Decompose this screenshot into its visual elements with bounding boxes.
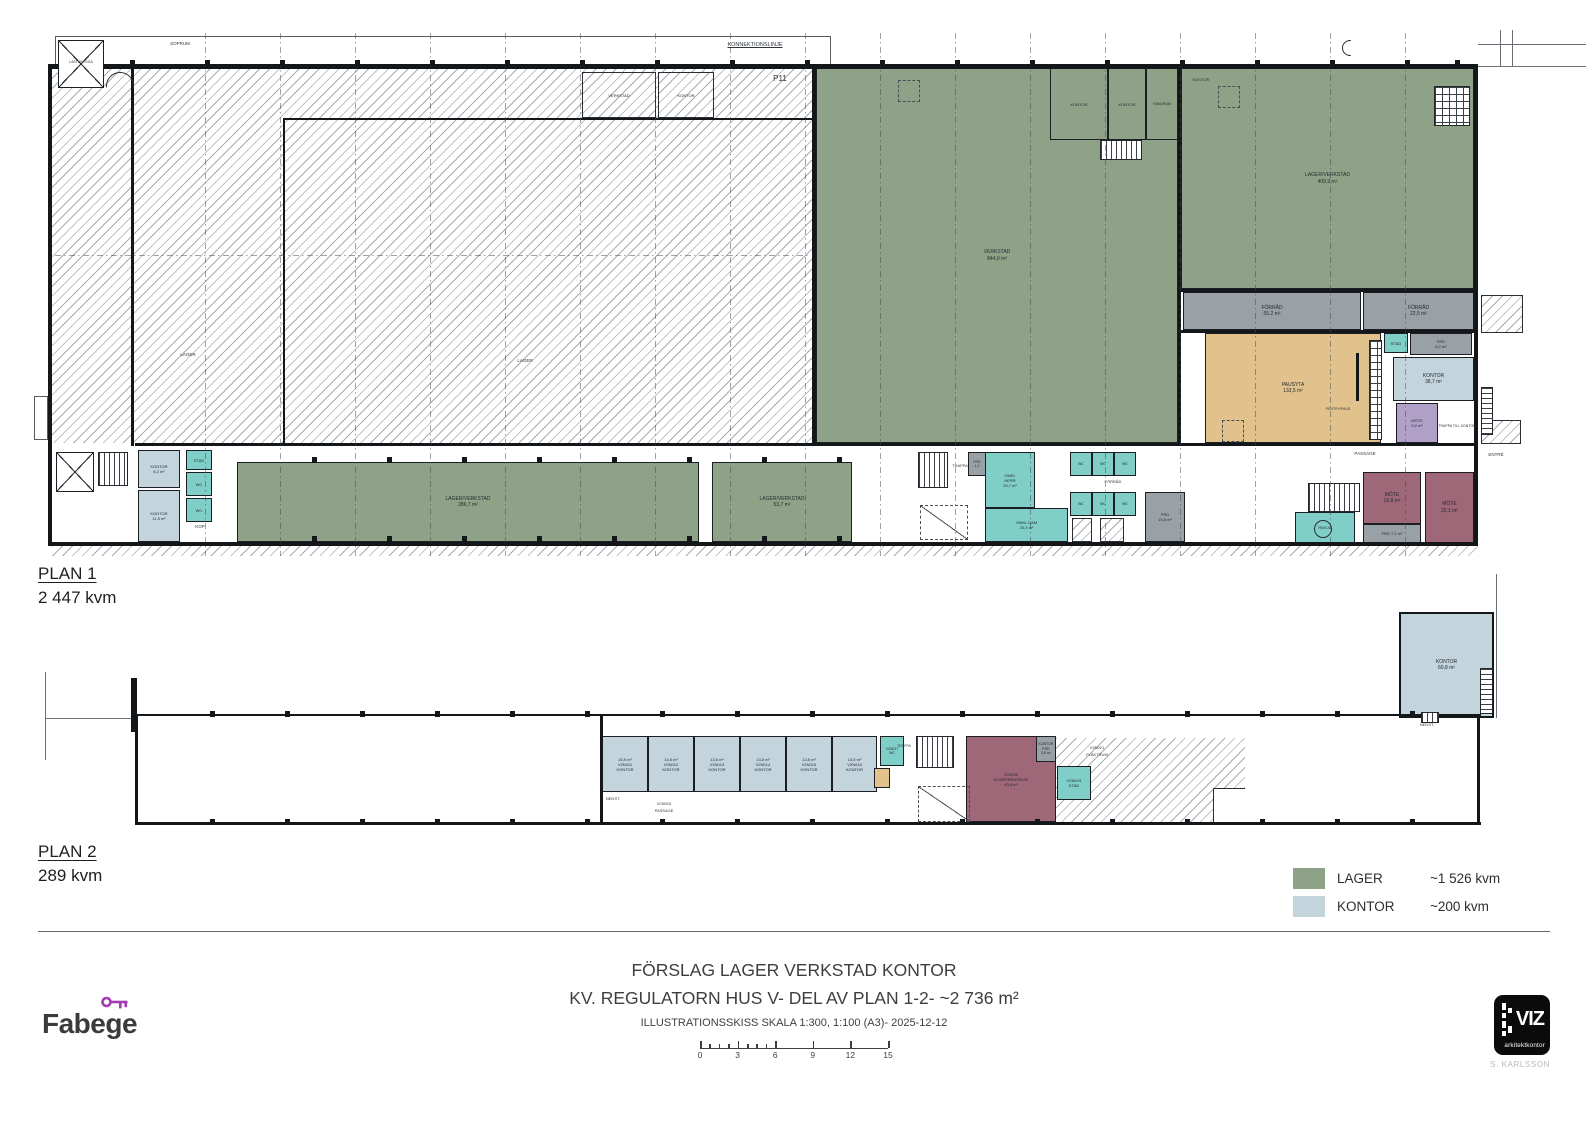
elevator-box (56, 452, 94, 492)
column-marker (312, 536, 317, 542)
scale-label: 12 (841, 1050, 859, 1060)
column-marker (1410, 819, 1415, 825)
plan-element (135, 443, 1478, 446)
grid-line (1255, 33, 1256, 556)
plan-element: WC (1092, 492, 1114, 516)
stairs (1480, 668, 1493, 714)
column-marker (762, 536, 767, 542)
column-marker (1180, 60, 1185, 66)
room-lager-verkstad-286: LAGER/VERKSTAD286,7 m² (237, 462, 699, 542)
column-marker (960, 711, 965, 717)
plan-note: PASSAGE (648, 809, 680, 814)
column-marker (462, 457, 467, 463)
plan-element (135, 822, 1481, 825)
plan-element (45, 672, 46, 760)
column-marker (1185, 819, 1190, 825)
external-landing (1481, 295, 1523, 333)
plan-element (48, 542, 1478, 546)
plan-element (45, 718, 135, 719)
column-marker (210, 819, 215, 825)
plan-element: KONTORFRD3,8 m² (1036, 736, 1056, 762)
column-marker (355, 60, 360, 66)
plan-element: STÄD (186, 450, 212, 470)
title-line3: ILLUSTRATIONSSKISS SKALA 1:300, 1:100 (A… (0, 1017, 1588, 1029)
column-marker (885, 711, 890, 717)
column-marker (612, 536, 617, 542)
plan-element: WC (1070, 492, 1092, 516)
plan-note: FÖRRÅD (1096, 480, 1130, 485)
column-marker (1185, 711, 1190, 717)
plan-note: V2N010 (648, 802, 680, 807)
grid-line (730, 33, 731, 556)
grid-line (655, 33, 656, 556)
plan-note: TRAPPA (946, 464, 974, 469)
scale-tick (709, 1044, 711, 1048)
scale-label: 6 (766, 1050, 784, 1060)
column-marker (1260, 819, 1265, 825)
plan-element (283, 118, 285, 445)
plan-element (285, 118, 815, 120)
column-marker (960, 819, 965, 825)
column-marker (435, 819, 440, 825)
column-marker (387, 536, 392, 542)
column-marker (612, 457, 617, 463)
scale-label: 15 (879, 1050, 897, 1060)
legend-item-lager: LAGER ~1 526 kvm (1293, 868, 1563, 889)
scale-label: 3 (729, 1050, 747, 1060)
grid-line (205, 33, 206, 556)
plan2-area: 289 kvm (38, 866, 102, 886)
plan-element (135, 714, 138, 825)
plan-element: HANDRUM (1146, 68, 1178, 140)
scale-tick (775, 1041, 777, 1048)
legend-value-lager: ~1 526 kvm (1430, 871, 1500, 886)
legend-label-kontor: KONTOR (1337, 899, 1430, 914)
column-marker (462, 536, 467, 542)
column-marker (285, 819, 290, 825)
column-marker (1110, 819, 1115, 825)
plan-element (48, 64, 52, 546)
column-marker (435, 711, 440, 717)
room-kontor-v2n015: 13,5 m²V2N015KONTOR (786, 736, 832, 792)
column-marker (735, 711, 740, 717)
column-marker (580, 60, 585, 66)
column-marker (285, 711, 290, 717)
column-marker (837, 536, 842, 542)
scale-tick (813, 1041, 815, 1048)
column-marker (510, 711, 515, 717)
plan-note: ENTRÉ (1482, 452, 1510, 457)
column-marker (1260, 711, 1265, 717)
room-lager-verkstad-53: LAGER/VERKSTAD53,7 m² (712, 462, 852, 542)
scale-tick (728, 1044, 730, 1048)
legend-swatch-kontor (1293, 896, 1325, 917)
column-marker (660, 711, 665, 717)
column-marker (1335, 711, 1340, 717)
column-marker (360, 711, 365, 717)
stairs (98, 452, 128, 486)
room-kontor-v2n016: 13,5 m²V2N016KONTOR (832, 736, 877, 792)
room-kontor-v2n014: 13,5 m²V2N014KONTOR (740, 736, 786, 792)
room-kontor-11: KONTOR11,5 m² (138, 490, 180, 542)
plan-note: PENTRY/PAUS (1320, 407, 1356, 411)
stairs (1308, 483, 1360, 512)
grid-line (1030, 33, 1031, 556)
column-marker (1035, 819, 1040, 825)
plan-element (1072, 518, 1092, 542)
plan1-caption: PLAN 1 2 447 kvm (38, 564, 116, 608)
column-marker (687, 457, 692, 463)
room-mote-32: MÖTE32,1 m² (1425, 472, 1474, 543)
plan-note: KOP (190, 524, 210, 529)
reserved-area (920, 505, 968, 540)
column-marker (312, 457, 317, 463)
drawing-sheet: VERKSTAD844,0 m²LAGER/VERKSTAD409,9 m²FÖ… (0, 0, 1588, 1123)
legend-value-kontor: ~200 kvm (1430, 899, 1489, 914)
key-icon (101, 995, 131, 1011)
room-forrad-55: FÖRRÅD55,2 m² (1183, 292, 1361, 330)
room-kontor-v2n012: 13,5 m²V2N012KONTOR (648, 736, 694, 792)
column-marker (130, 60, 135, 66)
column-marker (585, 819, 590, 825)
room-kontor-v2n013: 13,5 m²V2N013KONTOR (694, 736, 740, 792)
scale-bar: 03691215 (700, 1040, 888, 1049)
legend-swatch-lager (1293, 868, 1325, 889)
plan-element: VERKSTAD (582, 72, 656, 118)
plan-element (812, 64, 816, 446)
grid-line (355, 33, 356, 556)
column-marker (955, 60, 960, 66)
pillar-dashed (898, 80, 920, 102)
plan-element: KONTOR (1108, 68, 1146, 140)
scale-tick (700, 1041, 702, 1048)
column-marker (537, 536, 542, 542)
plan-element: FRD 7,1 m² (1363, 524, 1421, 543)
plan-note: LAGER (168, 352, 208, 357)
plan-note: SOPRUM (150, 41, 210, 46)
plan-element (600, 716, 603, 822)
plan-note: TRAPPA (893, 744, 915, 748)
plan-element: WC (1114, 452, 1136, 476)
plan-element: KONTOR (658, 72, 714, 118)
ground-hatch (52, 546, 1478, 556)
plan-element (48, 64, 1478, 69)
scale-label: 9 (804, 1050, 822, 1060)
plan2-caption: PLAN 2 289 kvm (38, 842, 102, 886)
plan-note: LAGER (505, 358, 545, 363)
column-marker (880, 60, 885, 66)
scale-tick (756, 1044, 758, 1048)
plan-note: KONNEKTIONSLINJE (695, 42, 815, 48)
plan-note: P11 (760, 74, 800, 83)
stairs (916, 736, 954, 768)
column-marker (1335, 819, 1340, 825)
room-mote-19: MÖTE19,8 m² (1363, 472, 1421, 524)
column-marker (1330, 60, 1335, 66)
hook-symbol (1342, 40, 1358, 56)
architect-credit: S. KARLSSON (1460, 1060, 1550, 1069)
plan-note: TRAPPA TILL KONTOR (1438, 424, 1476, 428)
plan-element (1478, 66, 1586, 67)
plan-note: NEDST. (1412, 723, 1442, 728)
divider-rule (38, 931, 1550, 932)
plan1-area: 2 447 kvm (38, 588, 116, 608)
plan2-title: PLAN 2 (38, 842, 102, 862)
column-marker (805, 60, 810, 66)
room-kontor-8: KONTOR8,2 m² (138, 450, 180, 488)
scale-tick (719, 1044, 721, 1048)
plan-element (135, 714, 1481, 716)
column-marker (885, 819, 890, 825)
plan-element: V2N017WC (880, 736, 904, 766)
plan-element: FRD6,2 m² (1410, 333, 1472, 355)
plan-element: WC (186, 472, 212, 496)
column-marker (655, 60, 660, 66)
column-marker (660, 819, 665, 825)
plan-element (1500, 30, 1501, 66)
grid-line (955, 33, 956, 556)
plan1-title: PLAN 1 (38, 564, 116, 584)
plan-note: PASSAGE (1345, 451, 1385, 456)
grid-line (1405, 33, 1406, 556)
plan-note: FLÄKTRUM (1080, 753, 1114, 758)
viz-logo-dots (1502, 1003, 1506, 1010)
plan-element (1478, 44, 1586, 45)
room-forrad-22: FÖRRÅD22,5 m² (1363, 292, 1474, 330)
column-marker (1255, 60, 1260, 66)
grid-line (1180, 33, 1181, 556)
grid-line (580, 33, 581, 556)
column-marker (810, 711, 815, 717)
room-kontor-v2n011: 15,9 m²V2N011KONTOR (602, 736, 648, 792)
viz-logo-text: VIZ (1516, 1008, 1544, 1031)
plan-element (1213, 788, 1245, 822)
title-line2: KV. REGULATORN HUS V- DEL AV PLAN 1-2- ~… (0, 988, 1588, 1009)
room-omkl-herr: OMKLHERR20,7 m² (985, 452, 1035, 508)
reserved-area (918, 786, 970, 822)
plan-element: WC (1070, 452, 1092, 476)
column-marker (1035, 711, 1040, 717)
column-marker (730, 60, 735, 66)
stairs (1100, 140, 1142, 160)
legend-label-lager: LAGER (1337, 871, 1430, 886)
column-marker (837, 457, 842, 463)
title-line1: FÖRSLAG LAGER VERKSTAD KONTOR (0, 960, 1588, 981)
grid-line (430, 33, 431, 556)
grid-line (805, 33, 806, 556)
legend-item-kontor: KONTOR ~200 kvm (1293, 896, 1563, 917)
column-marker (585, 711, 590, 717)
column-marker (735, 819, 740, 825)
column-marker (205, 60, 210, 66)
plan-element (1100, 518, 1124, 542)
column-marker (1110, 711, 1115, 717)
floorplan-canvas: VERKSTAD844,0 m²LAGER/VERKSTAD409,9 m²FÖ… (0, 0, 1588, 1123)
plan-note: KONTOR (1184, 78, 1218, 83)
plan-element: KONTOR (1050, 68, 1108, 140)
external-stairs (1481, 387, 1493, 435)
grid-line (280, 33, 281, 556)
column-marker (537, 457, 542, 463)
room-mote-9: MÖTE9,2 m² (1396, 403, 1438, 443)
scale-tick (888, 1041, 890, 1048)
scale-tick (766, 1044, 768, 1048)
column-marker (762, 457, 767, 463)
pentry (874, 768, 890, 788)
plan-element (34, 396, 48, 440)
scale-tick (738, 1041, 740, 1048)
plan-note: NEDST. (600, 797, 626, 802)
pillar-dashed (1222, 420, 1244, 442)
fabege-logo: Fabege (42, 1008, 137, 1040)
plan-element: V2N019STÄD (1057, 766, 1091, 800)
stairs (918, 452, 948, 488)
pentry-bar (1356, 353, 1359, 401)
column-marker (1105, 60, 1110, 66)
column-marker (280, 60, 285, 66)
grid-line (1105, 33, 1106, 556)
plan-element (1474, 64, 1478, 546)
plan-element: WC (1092, 452, 1114, 476)
column-marker (810, 819, 815, 825)
plan-note: V2N021 (1080, 746, 1114, 751)
plan-element (1477, 714, 1480, 825)
grid-line (505, 33, 506, 556)
scale-tick (747, 1044, 749, 1048)
plan-element: WC (1114, 492, 1136, 516)
viz-logo-dots (1502, 1013, 1506, 1018)
viz-logo: VIZ arkitektkontor (1494, 995, 1550, 1055)
scale-label: 0 (691, 1050, 709, 1060)
plan-element: FRD15,8 m² (1145, 492, 1185, 542)
grid-line (55, 255, 810, 256)
grid-line (1330, 33, 1331, 556)
column-marker (387, 457, 392, 463)
viz-logo-dots (1508, 1026, 1512, 1033)
column-marker (687, 536, 692, 542)
plan-element: WC (186, 498, 212, 522)
column-marker (1410, 711, 1415, 717)
pentry-counter (1369, 340, 1382, 440)
column-marker (430, 60, 435, 66)
plan-element (1496, 574, 1497, 718)
scale-tick (850, 1041, 852, 1048)
grid-line (880, 33, 881, 556)
viz-logo-dots (1502, 1021, 1506, 1028)
column-marker (1455, 60, 1460, 66)
column-marker (505, 60, 510, 66)
viz-logo-dots (1508, 1008, 1512, 1013)
equipment (1434, 86, 1470, 126)
room-omkl-dam: OMKL DAM20,3 m² (985, 508, 1068, 542)
column-marker (1030, 60, 1035, 66)
pillar-dashed (1218, 86, 1240, 108)
viz-logo-subtext: arkitektkontor (1504, 1042, 1545, 1049)
plan-note: LASTBRYGGA (56, 60, 106, 64)
plan-element (1512, 30, 1513, 66)
viz-logo-dots (1502, 1031, 1506, 1036)
column-marker (1405, 60, 1410, 66)
column-marker (210, 711, 215, 717)
column-marker (360, 819, 365, 825)
column-marker (510, 819, 515, 825)
